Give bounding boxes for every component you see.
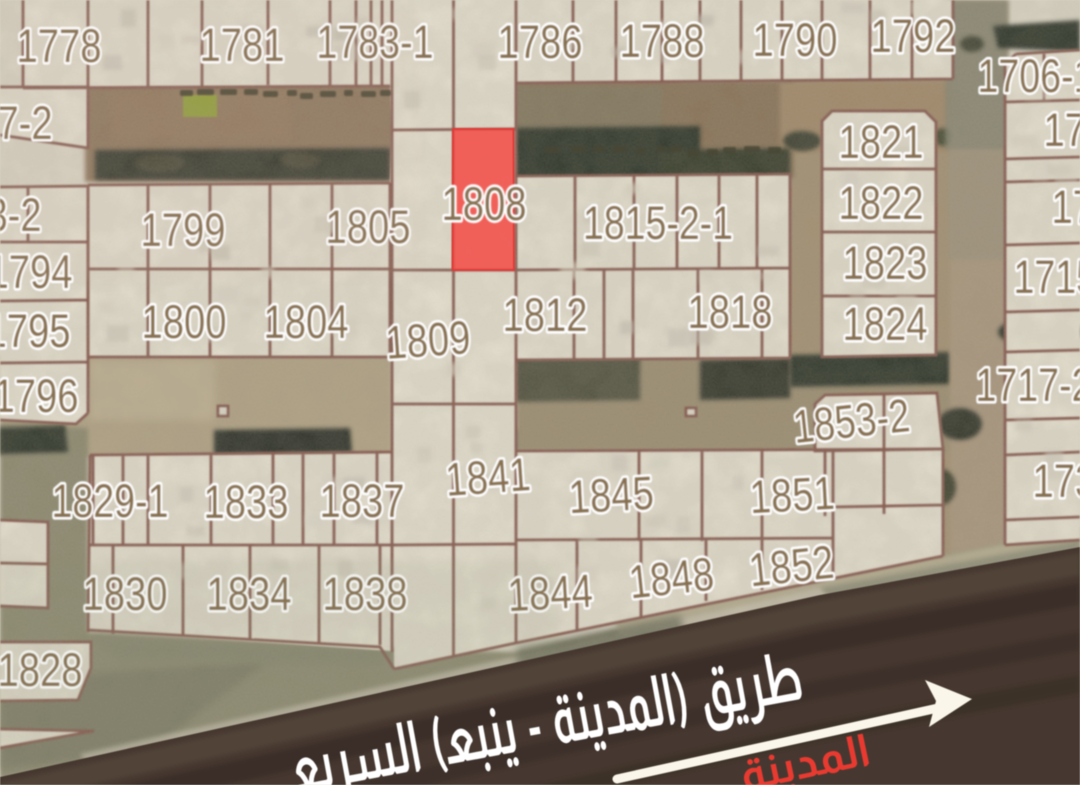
svg-text:1841: 1841 — [444, 447, 532, 506]
svg-text:1818: 1818 — [688, 285, 773, 338]
svg-text:1790: 1790 — [753, 13, 838, 66]
svg-text:1735: 1735 — [1033, 454, 1080, 507]
svg-text:1796: 1796 — [0, 369, 79, 422]
svg-text:1808: 1808 — [442, 177, 527, 230]
svg-text:1845: 1845 — [567, 466, 655, 523]
svg-text:1792: 1792 — [871, 9, 956, 62]
svg-text:1788: 1788 — [620, 14, 705, 67]
svg-text:1829-1: 1829-1 — [52, 474, 169, 527]
svg-text:1823: 1823 — [843, 236, 928, 289]
svg-text:1715-2: 1715-2 — [1014, 250, 1080, 303]
svg-text:1824: 1824 — [843, 297, 928, 350]
svg-text:1822: 1822 — [839, 176, 924, 229]
svg-text:1852: 1852 — [746, 535, 836, 597]
svg-text:1707: 1707 — [1044, 103, 1080, 156]
svg-text:1815-2-1: 1815-2-1 — [583, 196, 733, 249]
svg-text:1821: 1821 — [839, 115, 924, 168]
svg-text:1786: 1786 — [498, 15, 583, 68]
svg-text:1833: 1833 — [204, 475, 289, 528]
svg-text:1800: 1800 — [142, 295, 227, 348]
svg-text:1837: 1837 — [320, 474, 405, 527]
svg-text:1712: 1712 — [1052, 180, 1080, 233]
svg-text:1795: 1795 — [0, 304, 71, 357]
svg-text:1717-2: 1717-2 — [976, 358, 1080, 411]
svg-text:1706-1: 1706-1 — [978, 49, 1080, 102]
svg-text:1809: 1809 — [384, 310, 472, 369]
svg-text:1848: 1848 — [626, 547, 716, 609]
svg-text:1804: 1804 — [264, 295, 349, 348]
svg-text:1851: 1851 — [748, 466, 836, 523]
svg-text:1812: 1812 — [503, 288, 588, 341]
